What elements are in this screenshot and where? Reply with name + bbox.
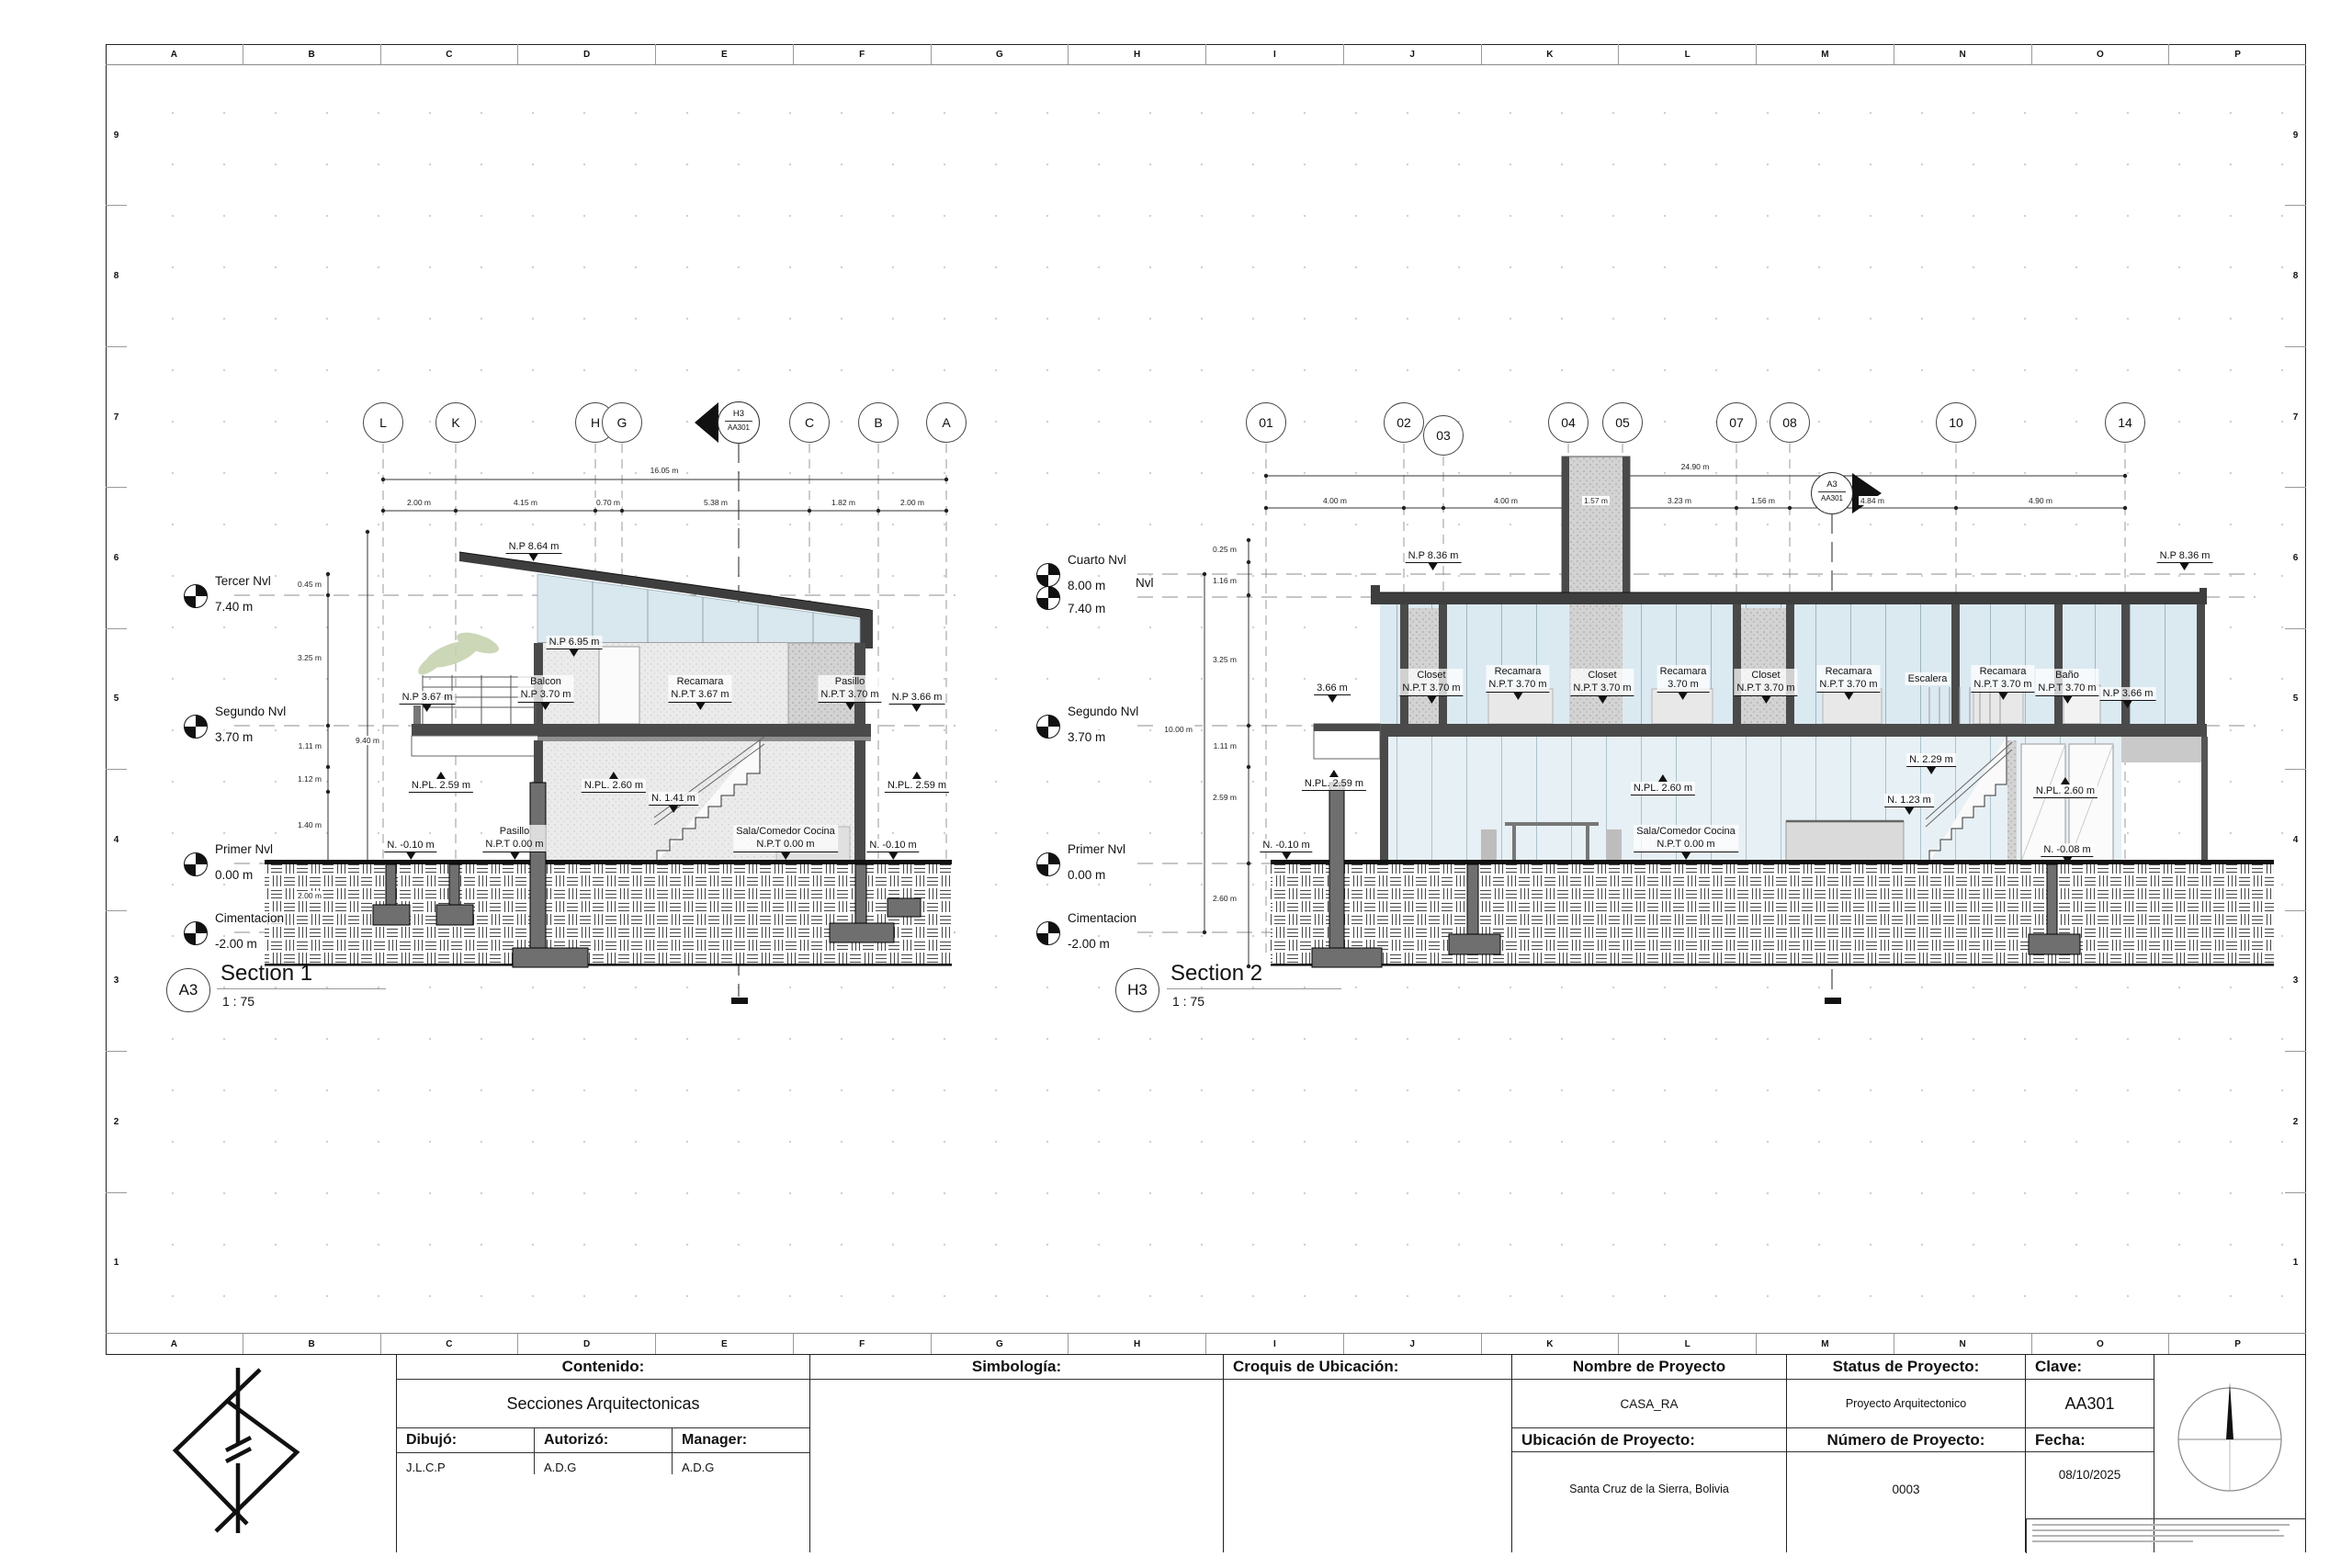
view-tag-section2: H3 [1115,968,1159,1012]
cut-marker-code: H3 [725,409,752,422]
cut-marker-sheet: AA301 [1812,494,1852,502]
autorizo-value: A.D.G [535,1453,673,1474]
cut-marker-code: A3 [1818,479,1846,492]
numero-label: Número de Proyecto: [1787,1427,2025,1452]
manager-value: A.D.G [673,1453,809,1474]
section-cut-marker-s1: H3 AA301 [718,401,760,444]
dibujo-value: J.L.C.P [397,1453,535,1474]
autorizo-label: Autorizó: [535,1428,673,1452]
title-block-simbologia-cell: Simbología: [810,1355,1224,1552]
view-title-section1: Section 1 [220,961,312,987]
clave-value: AA301 [2026,1380,2154,1427]
view-scale-section1: 1 : 75 [222,994,254,1009]
manager-label: Manager: [673,1428,809,1452]
title-block-logo-cell [106,1355,397,1552]
view-tag-label: A3 [179,981,198,999]
drawing-sheet: { "sheet": { "column_letters": ["A","B",… [0,0,2352,1568]
title-block-status-cell: Status de Proyecto: Proyecto Arquitecton… [1787,1355,2026,1552]
legal-disclaimer-text [2026,1518,2306,1553]
numero-value: 0003 [1787,1452,2025,1526]
section-drawings-linework [0,0,2352,1568]
view-title-underline [1167,988,1341,989]
title-block-nombre-cell: Nombre de Proyecto CASA_RA Ubicación de … [1512,1355,1787,1552]
section-cut-marker-s2: A3 AA301 [1811,472,1853,514]
view-scale-section2: 1 : 75 [1172,994,1204,1009]
contenido-value: Secciones Arquitectonicas [397,1380,809,1427]
fecha-label: Fecha: [2026,1427,2154,1452]
simbologia-label: Simbología: [810,1355,1223,1380]
title-block-contenido-cell: Contenido: Secciones Arquitectonicas Dib… [397,1355,810,1552]
status-label: Status de Proyecto: [1787,1355,2025,1380]
cut-marker-sheet: AA301 [718,423,759,432]
title-block-croquis-cell: Croquis de Ubicación: [1224,1355,1512,1552]
clave-label: Clave: [2026,1355,2154,1380]
studio-logo-icon [106,1355,397,1551]
nombre-value: CASA_RA [1512,1380,1786,1427]
status-value: Proyecto Arquitectonico [1787,1380,2025,1427]
dibujo-label: Dibujó: [397,1428,535,1452]
croquis-label: Croquis de Ubicación: [1224,1355,1511,1380]
view-title-section2: Section 2 [1170,961,1262,987]
ubicacion-label: Ubicación de Proyecto: [1512,1427,1786,1452]
fecha-value: 08/10/2025 [2026,1452,2154,1496]
view-tag-label: H3 [1127,981,1148,999]
view-title-underline [217,988,386,989]
ubicacion-value: Santa Cruz de la Sierra, Bolivia [1512,1452,1786,1526]
contenido-label: Contenido: [397,1355,809,1380]
title-block: Contenido: Secciones Arquitectonicas Dib… [106,1354,2306,1552]
nombre-label: Nombre de Proyecto [1512,1355,1786,1380]
view-tag-section1: A3 [166,968,210,1012]
